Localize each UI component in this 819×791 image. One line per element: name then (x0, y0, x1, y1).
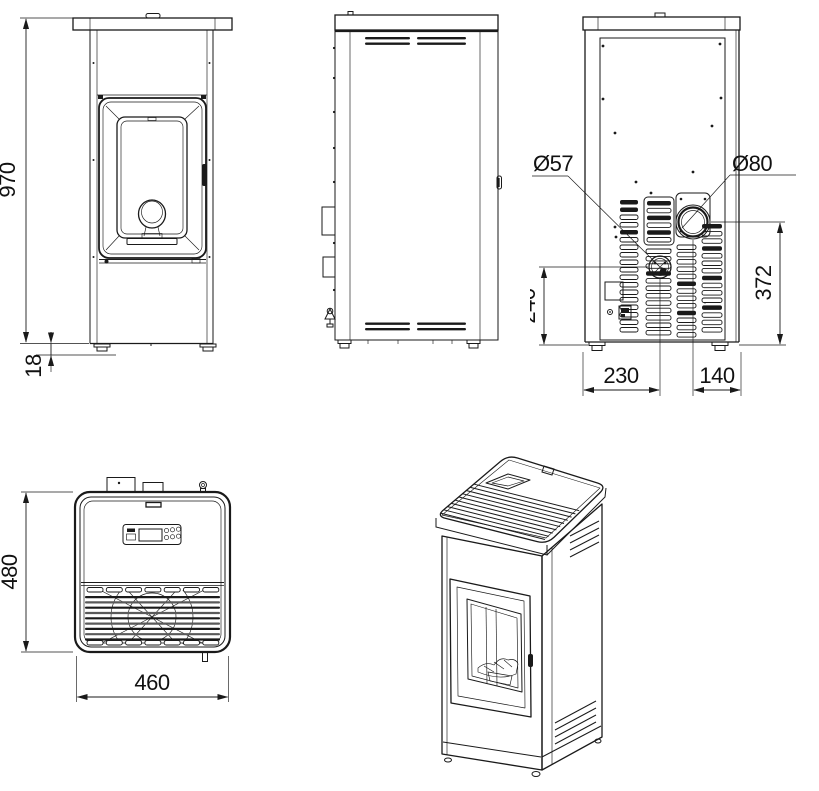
side-top-vents (417, 37, 466, 45)
technical-drawing: 970 18 (0, 0, 819, 791)
grille-slot-row (87, 588, 219, 593)
intake-offset-dimension: 230 (603, 363, 638, 388)
top-width-dimension: 460 (134, 670, 169, 695)
panel-button (176, 527, 180, 531)
grille-slot-row (87, 641, 219, 646)
back-feet (589, 342, 728, 351)
back-louvers (620, 200, 638, 332)
side-stove-body (333, 12, 498, 341)
panel-button (176, 534, 180, 538)
back-view: Ø57 Ø80 240 372 230 140 (530, 0, 819, 400)
top-view: 480 460 (0, 430, 300, 740)
side-top-vents (365, 37, 410, 45)
control-panel (123, 525, 181, 545)
display (139, 529, 162, 541)
panel-button (164, 528, 168, 532)
iso-firebox-contents (478, 659, 518, 685)
flue-height-dimension: 372 (751, 265, 776, 300)
iso-door-handle (528, 654, 533, 667)
top-depth-dimension: 480 (0, 554, 22, 589)
isometric-view (400, 440, 660, 791)
flue-offset-dimension: 140 (699, 363, 734, 388)
back-louvers (647, 201, 671, 242)
side-bottom-vents (417, 323, 466, 331)
iso-body (442, 504, 602, 777)
iso-top-grille (440, 484, 579, 539)
grille-bars (85, 596, 220, 641)
side-feet (338, 340, 480, 348)
iso-side-vents (555, 521, 599, 744)
iso-door (450, 579, 533, 717)
top-body (75, 492, 230, 662)
side-view (300, 0, 530, 370)
front-view: 970 18 (0, 0, 270, 400)
iso-top-handle (486, 474, 530, 489)
back-louvers (702, 224, 722, 332)
side-bottom-vents (365, 323, 410, 331)
intake-diameter-label: Ø57 (533, 151, 573, 176)
rear-connections-side (322, 207, 335, 327)
plinth-height-dimension: 18 (21, 354, 46, 378)
panel-button (170, 528, 174, 532)
lid-slot (146, 503, 161, 508)
front-height-dimension: 970 (0, 162, 20, 197)
top-protrusions (107, 478, 207, 493)
leveling-feet (94, 344, 216, 351)
panel-button (164, 535, 168, 539)
flue-diameter-label: Ø80 (732, 151, 772, 176)
intake-height-dimension: 240 (530, 288, 540, 323)
door-handle (202, 164, 207, 186)
front-stove-body (73, 14, 232, 344)
panel-button (170, 535, 174, 539)
